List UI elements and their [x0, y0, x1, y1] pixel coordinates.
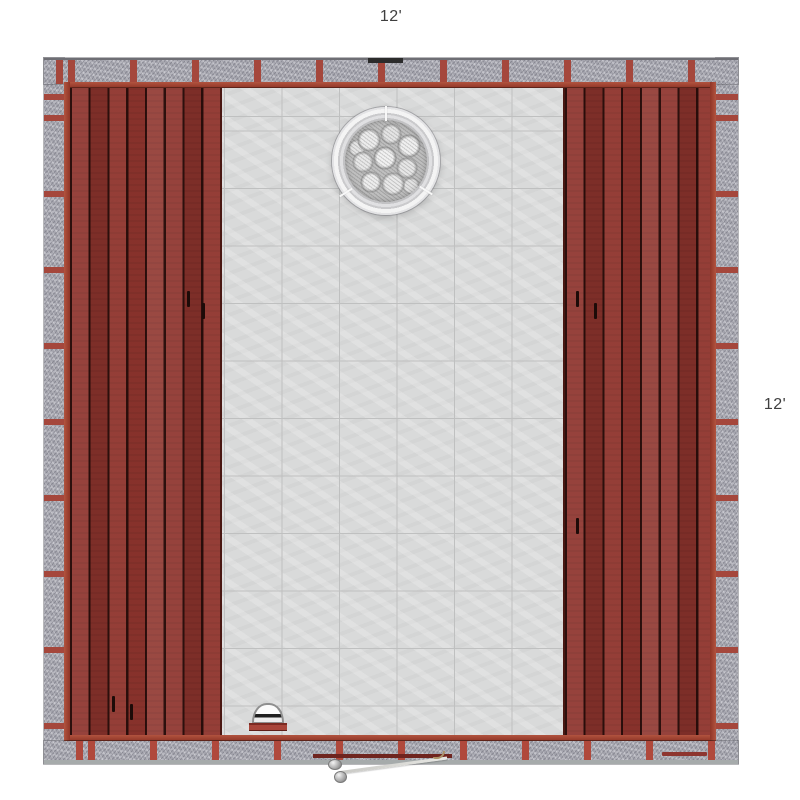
- bench-vent-slot: [576, 291, 579, 307]
- bench-vent-slot: [187, 291, 190, 307]
- sauna-floor-plan: 12' 12': [0, 0, 800, 800]
- bench-vent-slot: [576, 518, 579, 534]
- bench-vent-slot: [112, 696, 115, 712]
- wall-left: [44, 58, 64, 763]
- dimension-label-top: 12': [351, 8, 431, 26]
- dome-light-base: [249, 723, 287, 731]
- heater-rim-spoke: [419, 186, 433, 196]
- bench-left: [70, 88, 220, 735]
- door-handle-knob: [328, 759, 342, 770]
- bench-right: [565, 88, 710, 735]
- door-handle-knob: [334, 771, 347, 783]
- roof-vent-bar-icon: [368, 58, 403, 63]
- wall-bottom: [44, 741, 738, 764]
- door-threshold: [313, 754, 452, 758]
- frame-rail-right: [710, 82, 716, 741]
- floor-vent-bar-icon: [662, 752, 707, 756]
- bench-vent-slot: [202, 303, 205, 319]
- heater-rocks: [345, 120, 427, 202]
- wall-right: [716, 58, 738, 763]
- bench-vent-slot: [594, 303, 597, 319]
- heater-rim-spoke: [339, 188, 353, 198]
- heater-rim-spoke: [385, 106, 387, 121]
- frame-rail-bottom: [64, 735, 716, 741]
- bench-vent-slot: [130, 704, 133, 720]
- sauna-heater-icon: [332, 107, 440, 215]
- dimension-label-right: 12': [752, 396, 798, 414]
